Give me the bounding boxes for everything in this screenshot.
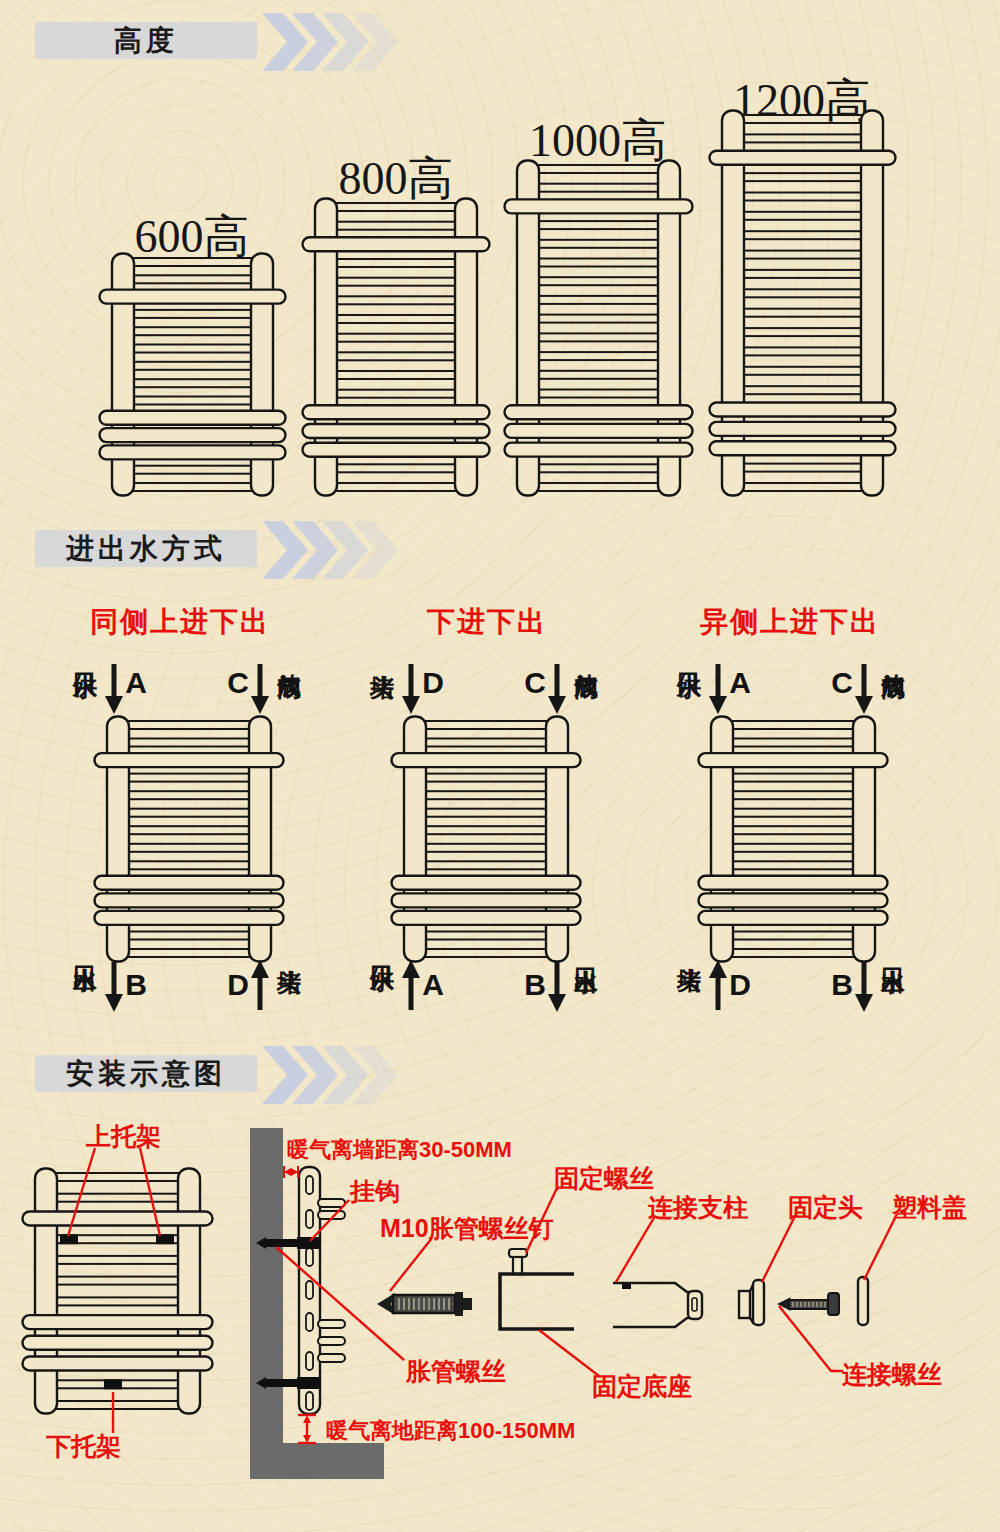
radiator-drawing — [93, 715, 285, 963]
radiator-figure — [390, 715, 582, 967]
flow-arrow-icon — [707, 960, 729, 1016]
section-header-height: 高度 — [0, 22, 1000, 62]
flow-arrow-icon — [853, 662, 875, 718]
port-letter: D — [225, 968, 251, 1002]
section-header-bar: 进出水方式 — [35, 530, 257, 567]
flow-diagram-title: 同侧上进下出 — [90, 603, 270, 641]
section-title-flow: 进出水方式 — [66, 530, 226, 568]
label-fixing-screw: 固定螺丝 — [554, 1162, 654, 1195]
radiator-drawing — [98, 252, 287, 497]
flow-arrow-icon — [400, 960, 422, 1016]
radiator-figure — [301, 197, 491, 501]
port-letter: C — [225, 666, 251, 700]
port-letter: B — [522, 968, 548, 1002]
flow-arrow-icon — [546, 662, 568, 718]
port-letter: D — [420, 666, 446, 700]
radiator-drawing — [708, 109, 897, 497]
label-expansion-screw: 胀管螺丝 — [406, 1355, 506, 1388]
port-letter: A — [727, 666, 753, 700]
port-letter: D — [727, 968, 753, 1002]
label-fixing-head: 固定头 — [788, 1191, 863, 1224]
port-letter: B — [123, 968, 149, 1002]
flow-diagram-title: 下进下出 — [427, 603, 547, 641]
port-letter: A — [420, 968, 446, 1002]
flow-diagram-title: 异侧上进下出 — [700, 603, 880, 641]
port-letter: C — [829, 666, 855, 700]
label-plastic-cover: 塑料盖 — [892, 1191, 967, 1224]
flow-arrow-icon — [400, 662, 422, 718]
radiator-drawing — [390, 715, 582, 963]
section-title-height: 高度 — [114, 22, 178, 60]
section-header-flow: 进出水方式 — [0, 530, 1000, 570]
radiator-drawing — [697, 715, 889, 963]
label-m10-screw: M10胀管螺丝钉 — [380, 1212, 554, 1245]
port-letter: C — [522, 666, 548, 700]
flow-arrow-icon — [103, 662, 125, 718]
radiator-figure — [697, 715, 889, 967]
label-floor-distance: 暖气离地距离100-150MM — [326, 1416, 575, 1446]
label-upper-bracket: 上托架 — [86, 1120, 161, 1153]
radiator-figure — [98, 252, 287, 501]
radiator-drawing — [503, 159, 694, 497]
radiator-figure — [503, 159, 694, 501]
chevron-arrows-icon — [262, 521, 402, 579]
label-connecting-screw: 连接螺丝 — [842, 1358, 942, 1391]
flow-arrow-icon — [103, 960, 125, 1016]
flow-arrow-icon — [546, 960, 568, 1016]
section-header-bar: 高度 — [35, 22, 257, 59]
section-header-install: 安装示意图 — [0, 1055, 1000, 1095]
section-title-install: 安装示意图 — [66, 1055, 226, 1093]
port-letter: A — [123, 666, 149, 700]
label-wall-distance: 暖气离墙距离30-50MM — [287, 1135, 512, 1165]
port-letter: B — [829, 968, 855, 1002]
chevron-arrows-icon — [262, 13, 402, 71]
section-header-bar: 安装示意图 — [35, 1055, 257, 1092]
label-connecting-pillar: 连接支柱 — [648, 1191, 748, 1224]
radiator-drawing — [301, 197, 491, 497]
radiator-figure — [708, 109, 897, 501]
label-lower-bracket: 下托架 — [46, 1430, 121, 1463]
radiator-figure — [93, 715, 285, 967]
chevron-arrows-icon — [262, 1046, 402, 1104]
flow-arrow-icon — [707, 662, 729, 718]
flow-arrow-icon — [249, 960, 271, 1016]
product-infographic: 高度 进出水方式 安装示意图 — [0, 0, 1000, 1532]
flow-arrow-icon — [853, 960, 875, 1016]
label-hook: 挂钩 — [350, 1175, 400, 1208]
label-fixing-base: 固定底座 — [592, 1370, 692, 1403]
flow-arrow-icon — [249, 662, 271, 718]
